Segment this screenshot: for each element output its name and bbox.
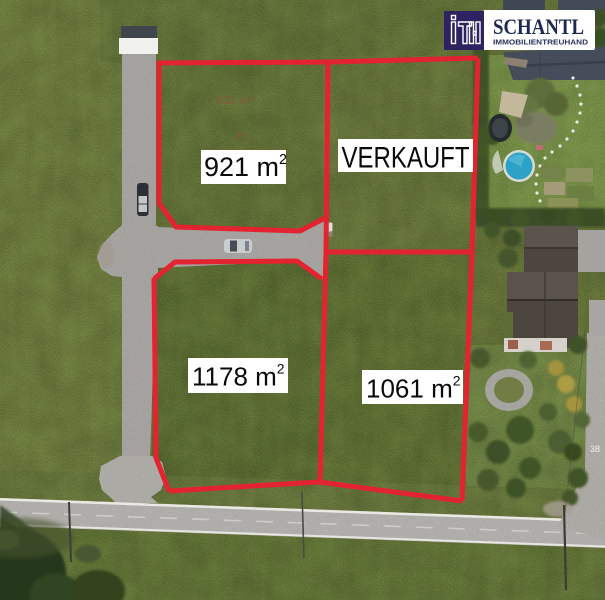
svg-text:921 m2: 921 m2	[204, 152, 287, 182]
svg-text:1061 m2: 1061 m2	[366, 373, 461, 404]
svg-text:921 m²: 921 m²	[216, 93, 253, 107]
svg-text:IMMOBILIENTREUHAND: IMMOBILIENTREUHAND	[493, 38, 589, 47]
svg-text:VERKAUFT: VERKAUFT	[342, 142, 470, 175]
svg-text:m: m	[235, 130, 244, 142]
svg-text:38: 38	[590, 444, 600, 454]
svg-text:SCHANTL: SCHANTL	[493, 14, 584, 39]
svg-text:1178 m2: 1178 m2	[192, 361, 285, 392]
